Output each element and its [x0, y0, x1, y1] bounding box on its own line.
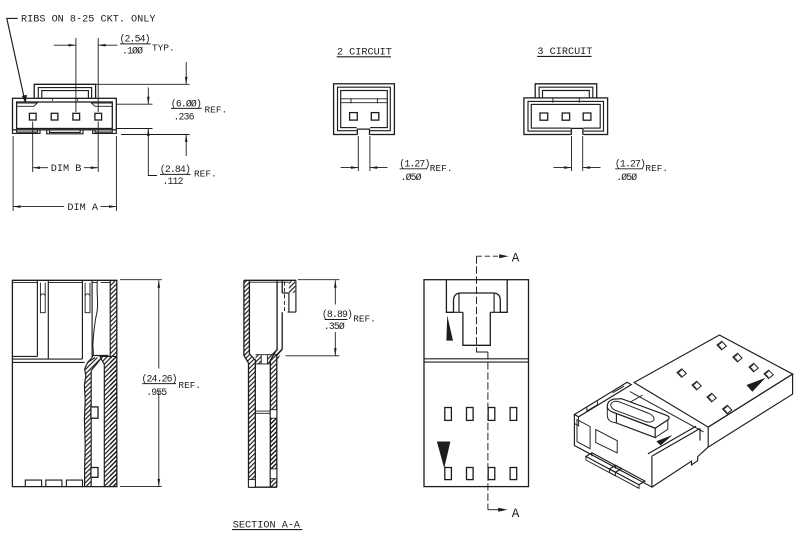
- svg-text:(2.54): (2.54): [120, 34, 150, 45]
- svg-text:.112: .112: [163, 176, 184, 187]
- svg-text:(1.27): (1.27): [615, 159, 645, 170]
- svg-text:REF.: REF.: [645, 163, 668, 174]
- svg-text:REF.: REF.: [205, 105, 228, 116]
- svg-text:(8.89): (8.89): [322, 309, 352, 320]
- svg-text:.955: .955: [146, 387, 167, 398]
- svg-text:.236: .236: [174, 112, 195, 123]
- svg-text:RIBS ON 8-25 CKT. ONLY: RIBS ON 8-25 CKT. ONLY: [21, 15, 156, 26]
- svg-text:.35Ø: .35Ø: [324, 321, 345, 332]
- svg-text:(6.ØØ): (6.ØØ): [171, 98, 201, 109]
- svg-text:REF.: REF.: [178, 380, 201, 391]
- svg-text:DIM B: DIM B: [51, 164, 82, 175]
- svg-text:REF.: REF.: [430, 163, 453, 174]
- svg-text:A: A: [512, 251, 520, 265]
- svg-text:.1ØØ: .1ØØ: [122, 46, 143, 57]
- svg-text:(1.27): (1.27): [399, 159, 429, 170]
- svg-text:REF.: REF.: [353, 314, 376, 325]
- svg-text:REF.: REF.: [194, 168, 217, 179]
- svg-text:A: A: [512, 507, 520, 521]
- svg-text:(24.26): (24.26): [142, 373, 177, 384]
- svg-text:(2.84): (2.84): [160, 164, 190, 175]
- svg-text:DIM A: DIM A: [67, 203, 98, 214]
- svg-text:.Ø5Ø: .Ø5Ø: [616, 172, 637, 183]
- svg-text:TYP.: TYP.: [152, 43, 175, 54]
- svg-text:.Ø5Ø: .Ø5Ø: [401, 172, 422, 183]
